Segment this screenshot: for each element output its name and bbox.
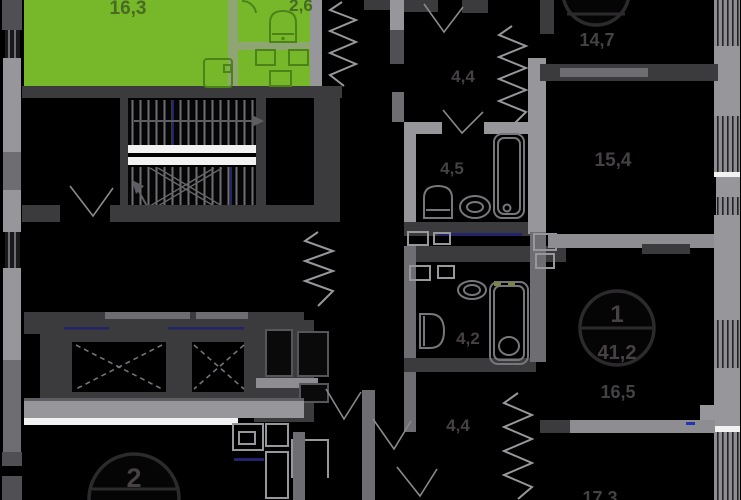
apartment-1-badge[interactable]: 1 41,2 (580, 291, 654, 365)
elevator-shaft-2 (178, 334, 254, 400)
studio-bath-area-label: 2,6 (289, 0, 313, 15)
bath-top-area-label: 4,5 (440, 159, 464, 178)
elevator-shaft-1 (40, 334, 178, 400)
hall-top-area-label: 4,4 (451, 67, 475, 86)
apartment-2-number: 2 (126, 463, 141, 493)
room-bottom-right-area-label: 16,5 (600, 382, 635, 402)
bath-partition (238, 42, 312, 50)
apartment-1-total-area: 41,2 (598, 342, 637, 364)
floor-plan: 16,3 2,6 (0, 0, 741, 500)
window-hatch-icon (714, 0, 740, 46)
stair-treads-upper (128, 100, 256, 145)
room-bottom-edge-area-label: 17,3 (582, 488, 617, 500)
room-top-right-area-label: 14,7 (579, 30, 614, 50)
bath-bottom-area-label: 4,2 (456, 329, 480, 348)
highlighted-studio-unit[interactable]: 16,3 2,6 (22, 0, 342, 98)
apartment-1-number: 1 (610, 301, 623, 328)
floor-plan-canvas: 16,3 2,6 (0, 0, 741, 500)
studio-room-area-label: 16,3 (110, 0, 147, 19)
hall-bottom-area-label: 4,4 (446, 416, 470, 435)
elevator-block (24, 312, 328, 425)
room-mid-right-area-label: 15,4 (595, 150, 632, 171)
